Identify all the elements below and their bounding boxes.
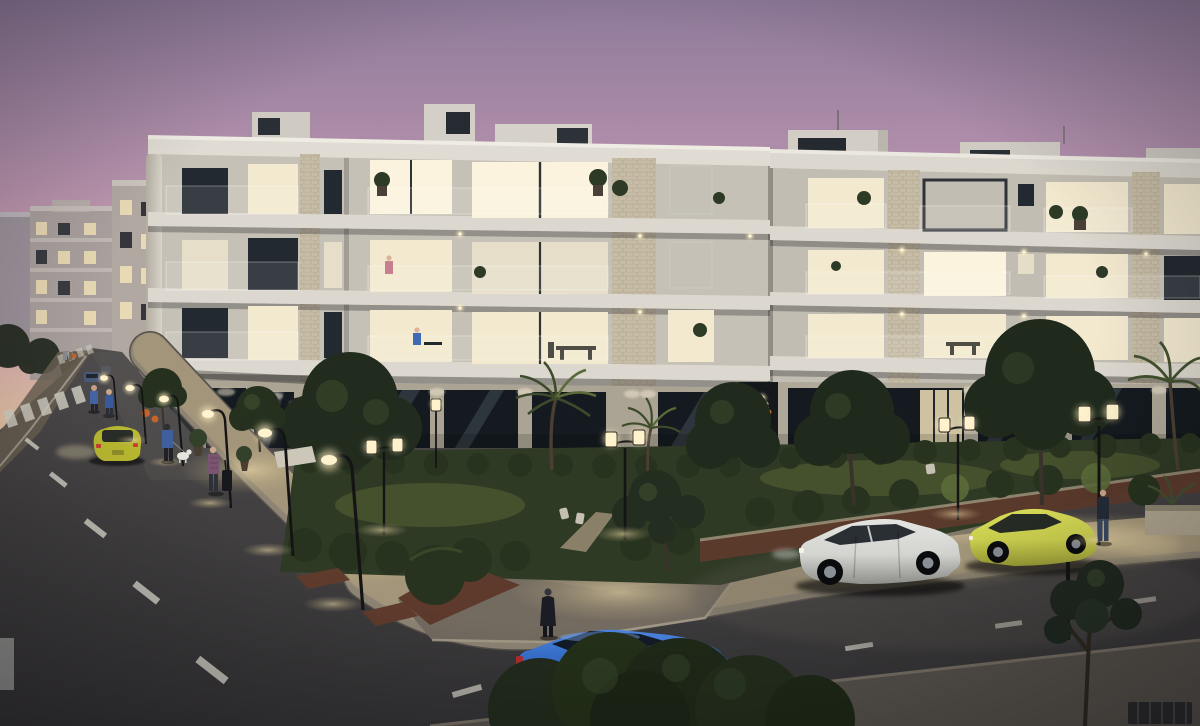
scene-canvas xyxy=(0,0,1200,726)
atmosphere xyxy=(0,0,1200,726)
vignette xyxy=(0,0,1200,726)
architectural-rendering xyxy=(0,0,1200,726)
